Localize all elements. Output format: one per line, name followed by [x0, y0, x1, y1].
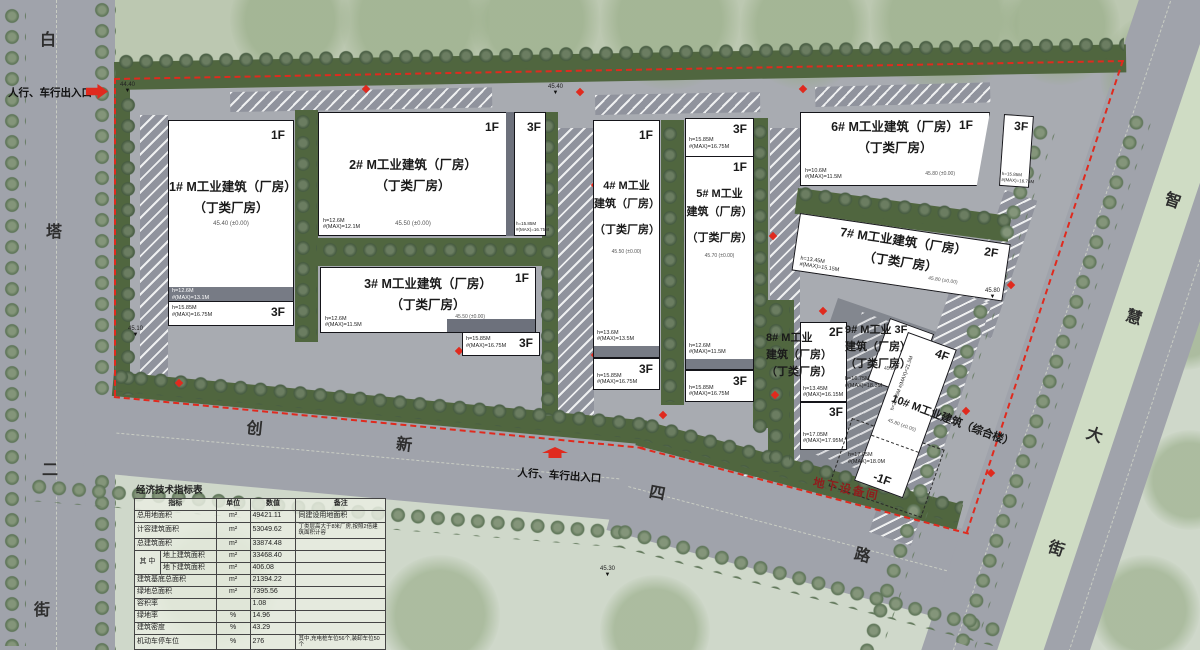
entrance-label-top-left: 人行、车行出入口 [8, 85, 92, 100]
floor-label: 3F [1014, 120, 1029, 133]
building-1-3f-wing: h=15.85M#(MAX)=16.75M 3F [169, 301, 293, 325]
tree-row [92, 0, 116, 396]
floor-label: 1F [639, 129, 653, 141]
tree-row [660, 124, 684, 402]
height-note: h=12.6M#(MAX)=12.1M [323, 218, 360, 231]
building-2-annex: 3F h=15.85M#(MAX)=16.75M [514, 112, 546, 236]
building-6-annex: 3F h=15.85M#(MAX)=16.75M [999, 114, 1034, 188]
building-5-3f-top: 3F h=15.85M#(MAX)=16.75M [685, 118, 754, 158]
building-6: 1F 6# M工业建筑（厂房） （丁类厂房） h=10.6M#(MAX)=11.… [800, 112, 990, 186]
spot-elevation: 45.80▼ [985, 288, 1000, 300]
building-label: 6# M工业建筑（厂房） （丁类厂房） [801, 117, 989, 160]
canopy-band [594, 346, 659, 357]
indicator-table: 经济技术指标表 指标 单位 数值 备注 总用地面积m²49421.11同建设用地… [134, 482, 386, 650]
elevation-note: 45.80 (±0.00) [877, 414, 926, 437]
canopy-band [686, 359, 753, 369]
building-4: 1F 4# M工业 建筑（厂房） （丁类厂房） 45.50 (±0.00) h=… [593, 120, 660, 358]
height-note: h=17.05M#(MAX)=18.0M [848, 452, 885, 465]
building-4-3f-wing: 3F h=15.85M#(MAX)=16.75M [593, 358, 660, 390]
tree-row [118, 95, 140, 395]
street-name-char: 塔 [46, 218, 62, 242]
elevation-marker-icon: ▼ [985, 294, 1000, 300]
table-title: 经济技术指标表 [136, 482, 386, 496]
building-1: 1F 1# M工业建筑（厂房） （丁类厂房） 45.40 (±0.00) h=1… [168, 120, 294, 326]
tree-row [320, 240, 542, 264]
elevation-note: 45.50 (±0.00) [594, 249, 659, 255]
tree-blob [380, 555, 500, 650]
floor-label: 3F [733, 375, 747, 387]
tree-row [293, 112, 317, 340]
height-note: h=12.6M#(MAX)=11.5M [325, 316, 362, 329]
elevation-note: 45.80 (±0.00) [925, 171, 955, 177]
table-row: 其 中地上建筑面积m²33468.40 [135, 550, 386, 562]
parking-row [140, 115, 168, 385]
height-note: h=15.85M#(MAX)=16.75M [516, 221, 549, 232]
tree-row [766, 300, 790, 472]
floor-label: 3F [527, 121, 541, 133]
spot-elevation: 44.40▼ [120, 82, 135, 94]
building-9-label: 9# M工业 3F 建筑（厂房） （丁类厂房） [845, 322, 955, 378]
height-note: h=15.85M#(MAX)=16.75M [689, 385, 729, 398]
elevation-marker-icon: ▼ [600, 572, 615, 578]
building-5: 1F 5# M工业 建筑（厂房） （丁类厂房） 45.70 (±0.00) h=… [685, 156, 754, 370]
table-row: 地下建筑面积m²406.08 [135, 562, 386, 574]
floor-label: 1F [271, 129, 285, 141]
table-row: 计容建筑面积m²53049.62丁类层高大于8米厂房,按照2倍建筑面积计容 [135, 523, 386, 539]
height-note: h=15.85M#(MAX)=16.75M [172, 305, 212, 318]
floor-label: 1F [485, 121, 499, 133]
floor-label: 3F [733, 123, 747, 135]
table-header-row: 指标 单位 数值 备注 [135, 499, 386, 511]
height-note: h=12.6M#(MAX)=11.5M [689, 343, 726, 356]
height-note: h=16.75M#(MAX)=18.3M [845, 376, 882, 389]
tree-row [2, 6, 26, 646]
table-row: 建筑基底总面积m²21394.22 [135, 574, 386, 586]
table-row: 机动车停车位%276其中,充电桩车位56个,装卸车位50个 [135, 634, 386, 650]
spot-elevation: 45.10▼ [128, 326, 143, 338]
parking-row [595, 92, 760, 115]
building-label: 2# M工业建筑（厂房） （丁类厂房） [319, 155, 507, 198]
table-row: 容积率1.08 [135, 598, 386, 610]
height-note: h=15.85M#(MAX)=16.75M [689, 137, 729, 150]
table-row: 建筑密度%43.29 [135, 622, 386, 634]
site-boundary-line [114, 78, 116, 396]
street-name-char: 新 [395, 430, 414, 456]
elevation-marker-icon: ▼ [128, 332, 143, 338]
basement-divider [871, 435, 918, 453]
building-label: 5# M工业 建筑（厂房） （丁类厂房） [686, 185, 753, 247]
building-2: 1F 2# M工业建筑（厂房） （丁类厂房） 45.50 (±0.00) h=1… [318, 112, 508, 236]
site-plan-canvas: 智 慧 大 街 [0, 0, 1200, 650]
building-label: 4# M工业 建筑（厂房） （丁类厂房） [594, 177, 659, 239]
building-8-3f: 3F h=17.05M#(MAX)=17.95M [800, 402, 847, 450]
street-name-char: 二 [42, 456, 58, 480]
floor-label: 3F [639, 363, 653, 375]
floor-label: 3F [895, 324, 908, 336]
building-3: 1F 3# M工业建筑（厂房） （丁类厂房） h=12.6M#(MAX)=11.… [320, 267, 536, 333]
table-row: 总建筑面积m²33874.48 [135, 538, 386, 550]
building-label: 1# M工业建筑（厂房） （丁类厂房） [169, 177, 293, 220]
street-name-char: 白 [40, 26, 56, 50]
building-shadow [447, 319, 535, 332]
height-note: h=10.6M#(MAX)=11.5M [805, 168, 842, 181]
building-3-annex: h=15.85M#(MAX)=16.75M 3F [462, 332, 540, 356]
elevation-note: 45.40 (±0.00) [169, 221, 293, 227]
canopy-band: h=12.6M#(MAX)=13.1M [169, 287, 293, 301]
street-name-char: 街 [34, 596, 50, 620]
building-5-3f-wing: 3F h=15.85M#(MAX)=16.75M [685, 370, 754, 402]
height-note: h=13.6M#(MAX)=13.5M [597, 330, 634, 343]
floor-label: 3F [519, 337, 533, 349]
spot-elevation: 45.40▼ [548, 84, 563, 96]
height-note: h=15.85M#(MAX)=16.75M [1001, 171, 1035, 184]
parking-row [558, 128, 594, 418]
floor-label: 3F [829, 406, 843, 418]
height-note: h=12.6M#(MAX)=13.1M [172, 288, 209, 301]
height-note: h=15.85M#(MAX)=16.75M [466, 336, 506, 349]
floor-label: 3F [271, 306, 285, 318]
elevation-marker-icon: ▼ [120, 88, 135, 94]
building-label: 3# M工业建筑（厂房） （丁类厂房） [321, 274, 535, 317]
elevation-marker-icon: ▼ [548, 90, 563, 96]
street-name-char: 创 [245, 414, 263, 440]
table-row: 总用地面积m²49421.11同建设用地面积 [135, 511, 386, 523]
floor-label: 1F [733, 161, 747, 173]
table-row: 绿地总面积m²7395.56 [135, 586, 386, 598]
height-note: h=13.45M#(MAX)=16.15M [803, 386, 843, 399]
spot-elevation: 45.30▼ [600, 566, 615, 578]
elevation-note: 45.80 [884, 366, 897, 372]
tree-blob [600, 575, 710, 650]
height-note: h=17.05M#(MAX)=17.95M [803, 432, 843, 445]
table-row: 绿地率%14.96 [135, 610, 386, 622]
elevation-note: 45.70 (±0.00) [686, 253, 753, 259]
height-note: h=15.85M#(MAX)=16.75M [597, 373, 637, 386]
